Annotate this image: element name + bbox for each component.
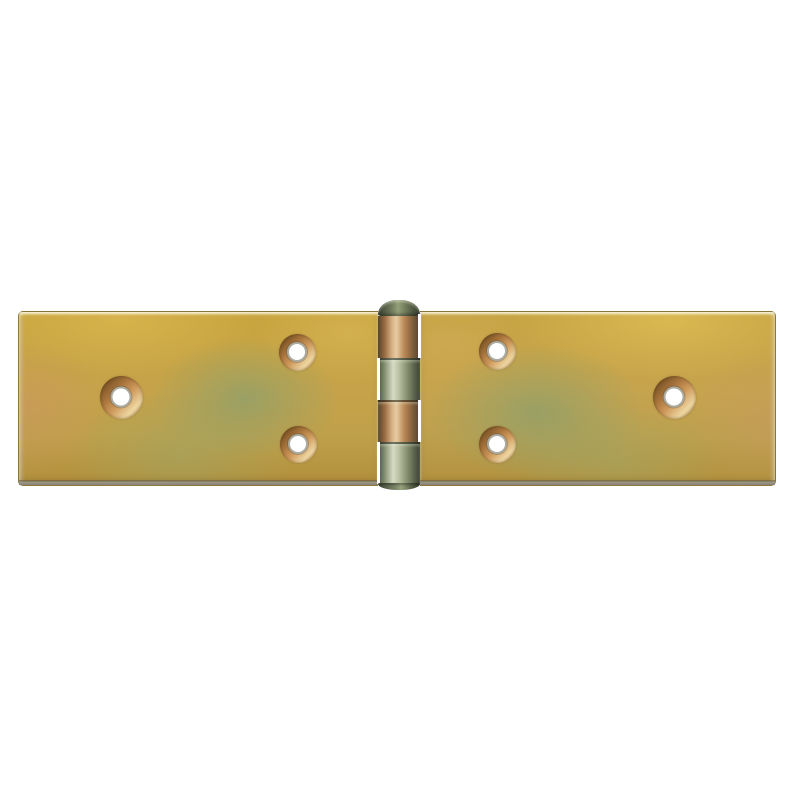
barrel-knuckle-2 [378, 358, 420, 400]
hole-bore [288, 434, 308, 454]
screw-hole-right-top [479, 333, 516, 370]
hinge-pin-head [378, 300, 420, 316]
knuckle-gap [418, 314, 421, 358]
barrel-knuckle-1 [378, 316, 420, 358]
barrel-knuckle-4 [378, 442, 420, 484]
hinge-leaf-left [18, 311, 378, 486]
screw-hole-right-bottom [479, 426, 516, 463]
leaf-top-bevel [19, 312, 378, 315]
leaf-bottom-edge [19, 480, 378, 485]
hinge-barrel [378, 300, 420, 490]
screw-hole-left-top [279, 334, 316, 371]
barrel-knuckles [378, 316, 420, 484]
hole-bore [487, 434, 507, 454]
hole-bore [287, 342, 307, 362]
knuckle-gap [418, 400, 421, 442]
screw-hole-right-outer [653, 376, 696, 419]
hole-bore [664, 387, 685, 408]
hole-bore [111, 387, 132, 408]
screw-hole-left-bottom [280, 426, 317, 463]
leaf-bottom-edge [420, 480, 775, 485]
barrel-knuckle-3 [378, 400, 420, 442]
screw-hole-left-outer [100, 376, 143, 419]
barrel-bottom-edge [378, 483, 420, 490]
hole-bore [487, 341, 507, 361]
knuckle-gap [377, 358, 380, 400]
hinge-leaf-right [420, 311, 776, 486]
leaf-top-bevel [420, 312, 775, 315]
hinge-stage [0, 0, 800, 800]
knuckle-gap [377, 442, 380, 484]
